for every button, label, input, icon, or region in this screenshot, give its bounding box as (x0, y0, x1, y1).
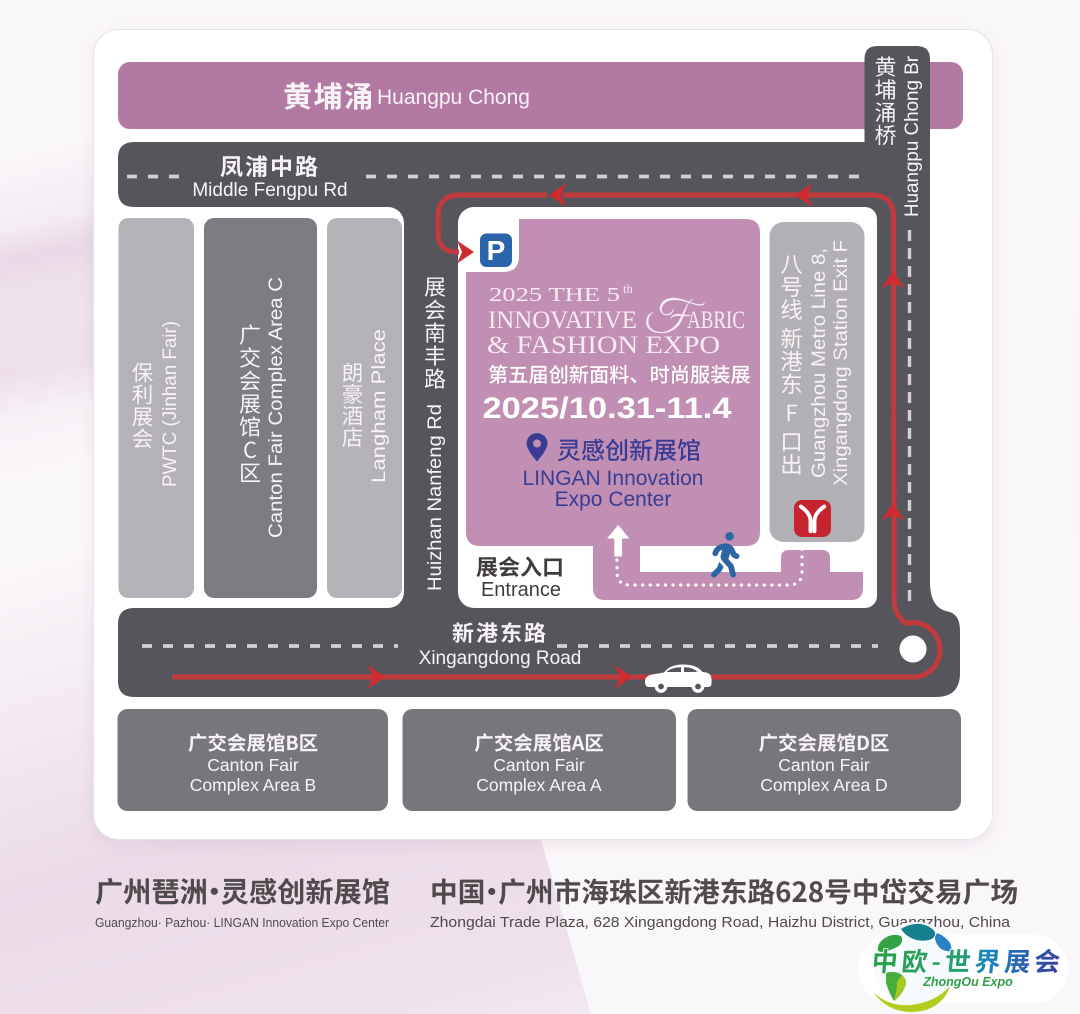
svg-text:Xingangdong Station Exit F: Xingangdong Station Exit F (831, 240, 852, 486)
svg-text:Expo Center: Expo Center (555, 488, 672, 511)
svg-text:Guangzhou· Pazhou· LINGAN Inno: Guangzhou· Pazhou· LINGAN Innovation Exp… (95, 916, 389, 930)
svg-text:2025/10.31-11.4: 2025/10.31-11.4 (483, 392, 732, 425)
svg-text:ABRIC: ABRIC (687, 307, 745, 334)
svg-text:Entrance: Entrance (481, 579, 561, 601)
svg-text:Complex Area B: Complex Area B (190, 775, 316, 795)
svg-text:Canton Fair: Canton Fair (207, 755, 299, 775)
svg-text:ZhongOu Expo: ZhongOu Expo (922, 975, 1013, 989)
svg-text:Canton Fair: Canton Fair (493, 755, 585, 775)
svg-text:Xingangdong Road: Xingangdong Road (419, 648, 582, 669)
svg-text:& FASHION EXPO: & FASHION EXPO (487, 332, 720, 359)
svg-text:PWTC (Jinhan Fair): PWTC (Jinhan Fair) (160, 321, 181, 487)
svg-text:P: P (487, 235, 506, 266)
svg-text:Canton Fair Complex Area C: Canton Fair Complex Area C (266, 277, 287, 538)
svg-text:Guangzhou Metro Line 8,: Guangzhou Metro Line 8, (809, 248, 830, 478)
svg-text:th: th (623, 282, 633, 296)
svg-text:Huangpu Chong: Huangpu Chong (377, 86, 530, 109)
svg-text:INNOVATIVE: INNOVATIVE (488, 307, 637, 334)
svg-text:Complex Area D: Complex Area D (760, 775, 887, 795)
svg-text:Complex Area A: Complex Area A (476, 775, 602, 795)
svg-text:LINGAN Innovation: LINGAN Innovation (523, 467, 704, 490)
svg-text:Huizhan Nanfeng Rd: Huizhan Nanfeng Rd (425, 404, 446, 591)
svg-text:Middle Fengpu Rd: Middle Fengpu Rd (192, 180, 347, 201)
svg-text:Langham Place: Langham Place (369, 329, 390, 483)
svg-text:Huangpu Chong Br: Huangpu Chong Br (902, 55, 923, 217)
svg-text:2025 THE 5: 2025 THE 5 (489, 284, 620, 306)
svg-text:Canton Fair: Canton Fair (778, 755, 870, 775)
